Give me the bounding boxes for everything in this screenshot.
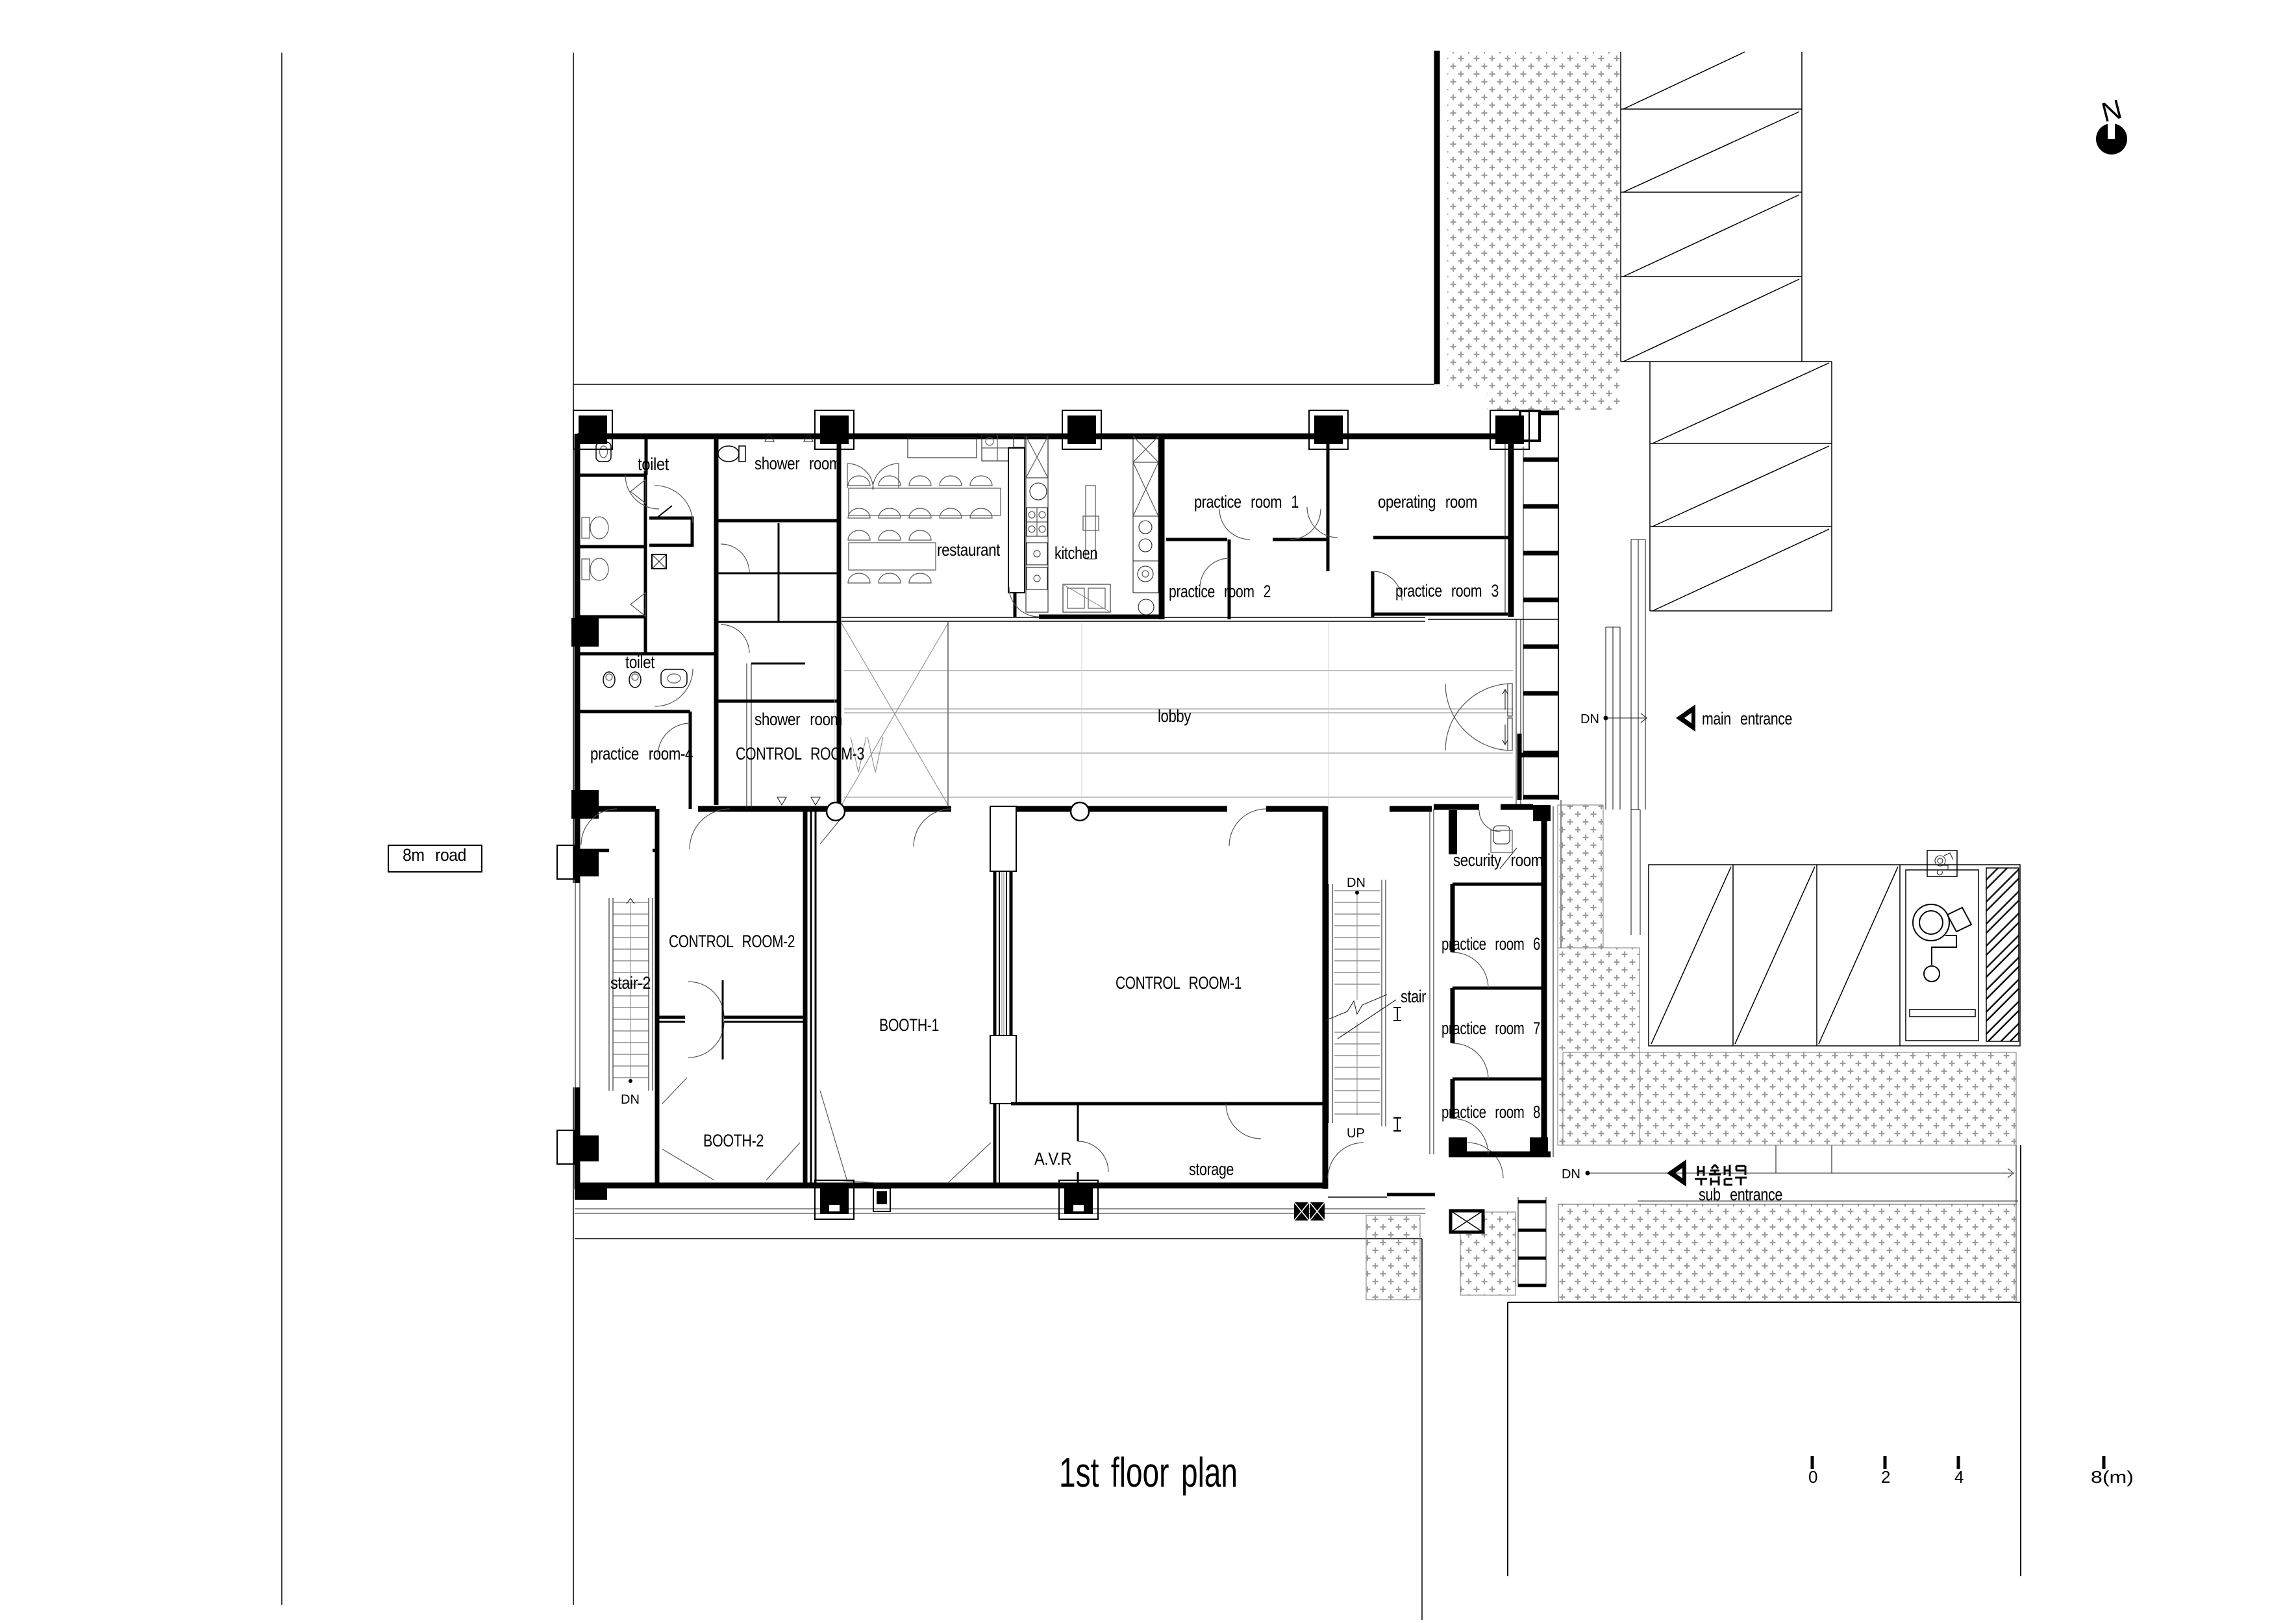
svg-text:stair-2: stair-2 <box>610 973 651 993</box>
svg-text:DN: DN <box>621 1093 640 1107</box>
svg-text:toilet: toilet <box>625 652 655 672</box>
svg-text:stair: stair <box>1401 987 1426 1006</box>
svg-text:DN: DN <box>1347 876 1366 890</box>
svg-text:storage: storage <box>1189 1159 1234 1179</box>
svg-text:practice room 3: practice room 3 <box>1395 581 1499 601</box>
svg-text:lobby: lobby <box>1158 706 1192 726</box>
svg-text:main entrance: main entrance <box>1702 709 1792 728</box>
svg-text:kitchen: kitchen <box>1054 543 1097 563</box>
svg-text:2: 2 <box>1881 1467 1890 1487</box>
svg-text:practice room-4: practice room-4 <box>590 744 693 763</box>
svg-text:UP: UP <box>1347 1126 1365 1141</box>
svg-text:CONTROL ROOM-1: CONTROL ROOM-1 <box>1116 973 1242 993</box>
svg-text:BOOTH-2: BOOTH-2 <box>703 1131 764 1150</box>
svg-text:DN: DN <box>1562 1167 1580 1182</box>
svg-text:shower room: shower room <box>755 454 841 473</box>
svg-text:practice room 8: practice room 8 <box>1441 1102 1540 1122</box>
svg-text:CONTROL ROOM-2: CONTROL ROOM-2 <box>669 932 795 951</box>
svg-text:sub entrance: sub entrance <box>1699 1185 1782 1204</box>
svg-text:security room: security room <box>1453 850 1543 870</box>
svg-text:0: 0 <box>1808 1467 1817 1487</box>
svg-text:1st floor plan: 1st floor plan <box>1059 1449 1238 1496</box>
svg-text:shower room: shower room <box>755 710 842 729</box>
svg-text:practice room 6: practice room 6 <box>1441 934 1540 954</box>
svg-text:restaurant: restaurant <box>937 540 1001 560</box>
svg-text:DN: DN <box>1580 712 1599 726</box>
svg-text:toilet: toilet <box>638 454 669 474</box>
svg-text:BOOTH-1: BOOTH-1 <box>879 1015 939 1035</box>
svg-text:8m road: 8m road <box>403 845 466 865</box>
svg-text:practice room 7: practice room 7 <box>1441 1019 1540 1038</box>
svg-text:practice room 1: practice room 1 <box>1194 492 1299 512</box>
svg-text:operating room: operating room <box>1378 492 1477 512</box>
svg-text:4: 4 <box>1954 1467 1964 1487</box>
svg-text:A.V.R: A.V.R <box>1034 1149 1071 1169</box>
svg-text:8(m): 8(m) <box>2091 1467 2134 1487</box>
svg-text:CONTROL ROOM-3: CONTROL ROOM-3 <box>736 744 864 763</box>
svg-text:practice room 2: practice room 2 <box>1169 582 1271 601</box>
